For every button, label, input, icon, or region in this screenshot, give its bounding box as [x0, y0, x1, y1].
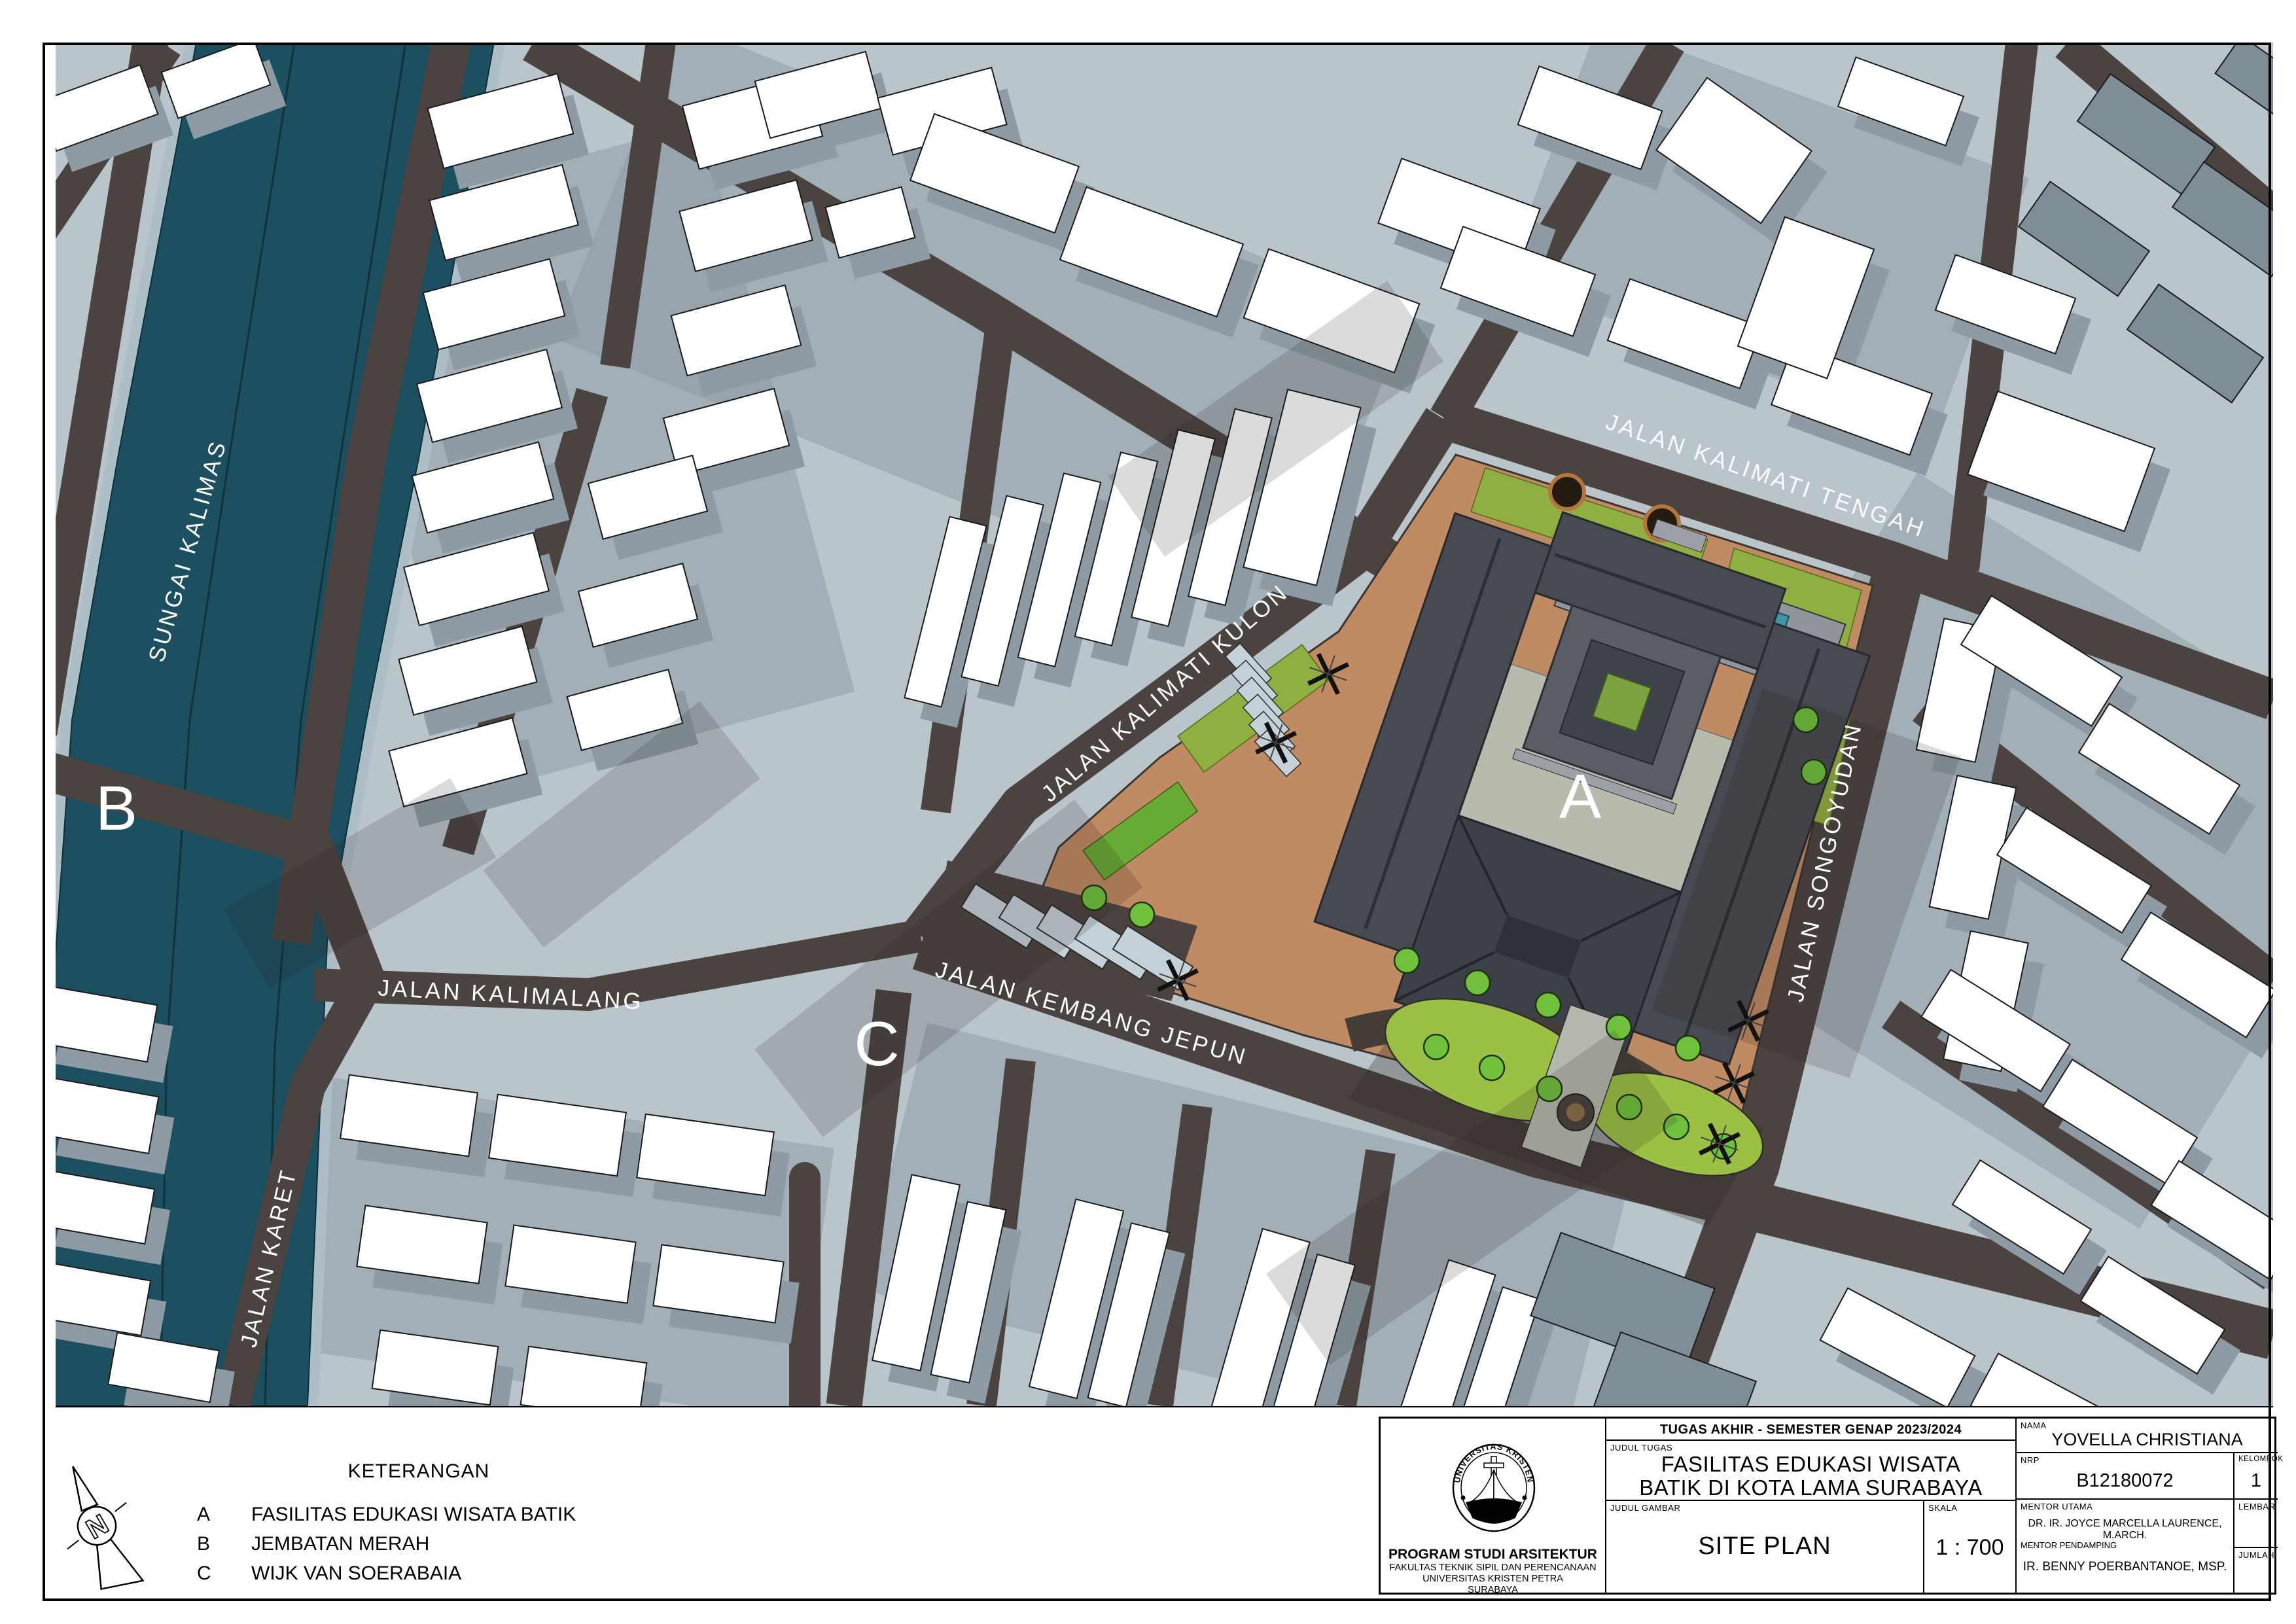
sheet-border — [43, 43, 2271, 1601]
drawing-sheet: SUNGAI KALIMAS JALAN KALIMATI TENGAH JAL… — [0, 0, 2296, 1624]
